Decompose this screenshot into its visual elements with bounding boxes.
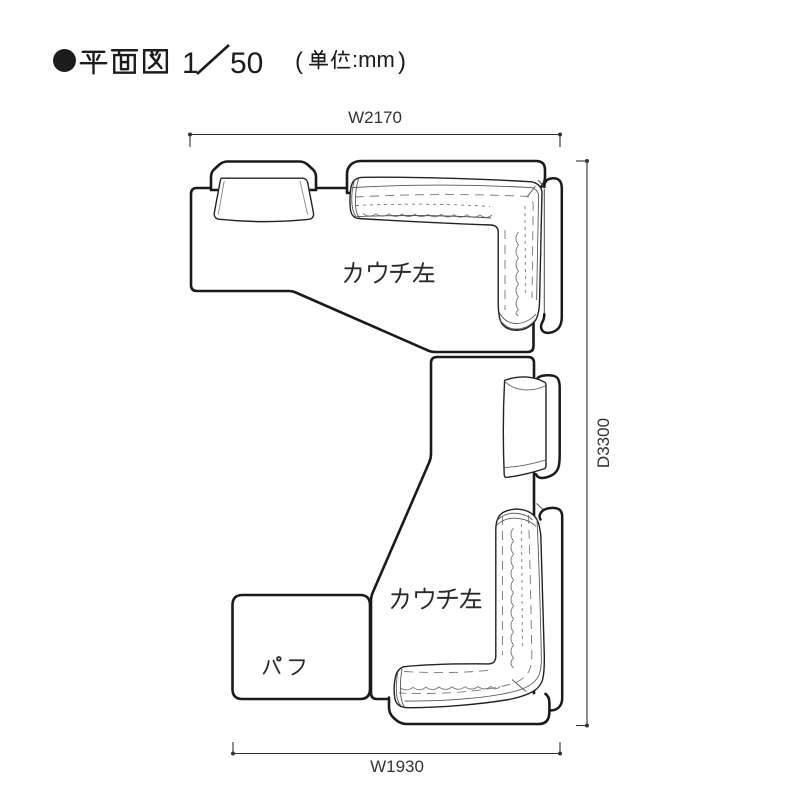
svg-text:W2170: W2170 bbox=[348, 108, 402, 127]
svg-text:W1930: W1930 bbox=[370, 757, 424, 776]
svg-text:): ) bbox=[398, 48, 406, 75]
svg-text:50: 50 bbox=[230, 47, 263, 80]
svg-text::mm: :mm bbox=[352, 47, 395, 72]
svg-text:(: ( bbox=[295, 48, 303, 75]
svg-text:D3300: D3300 bbox=[594, 418, 613, 468]
svg-text:1: 1 bbox=[182, 47, 199, 80]
